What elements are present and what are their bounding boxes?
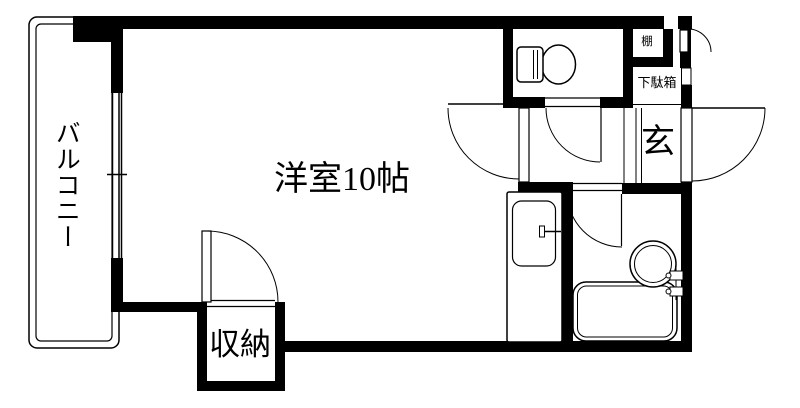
entrance-label: 玄 xyxy=(634,125,682,161)
closet-label: 収納 xyxy=(195,329,285,362)
room-label: 洋室10帖 xyxy=(232,162,452,198)
room-door-swing-icon xyxy=(448,104,529,182)
bathtub-icon xyxy=(573,282,677,341)
kitchen-sink-icon xyxy=(507,192,562,342)
window-icon xyxy=(107,93,127,258)
toilet-door-swing-icon xyxy=(545,98,601,162)
entrance-door-swing-icon xyxy=(681,108,765,182)
shelf-label: 棚 xyxy=(633,36,661,48)
toilet-icon xyxy=(517,45,576,84)
bathroom-door-swing-icon xyxy=(565,184,622,248)
balcony-label: バルコニー xyxy=(52,120,78,250)
floor-plan: 洋室10帖 バルコニー 収納 玄 下駄箱 棚 xyxy=(0,0,800,408)
closet-door-swing-icon xyxy=(202,231,278,307)
meter-box-door-swing-icon xyxy=(680,29,711,52)
floor-plan-drawing xyxy=(0,0,800,408)
shoe-cabinet-label: 下駄箱 xyxy=(630,76,684,90)
